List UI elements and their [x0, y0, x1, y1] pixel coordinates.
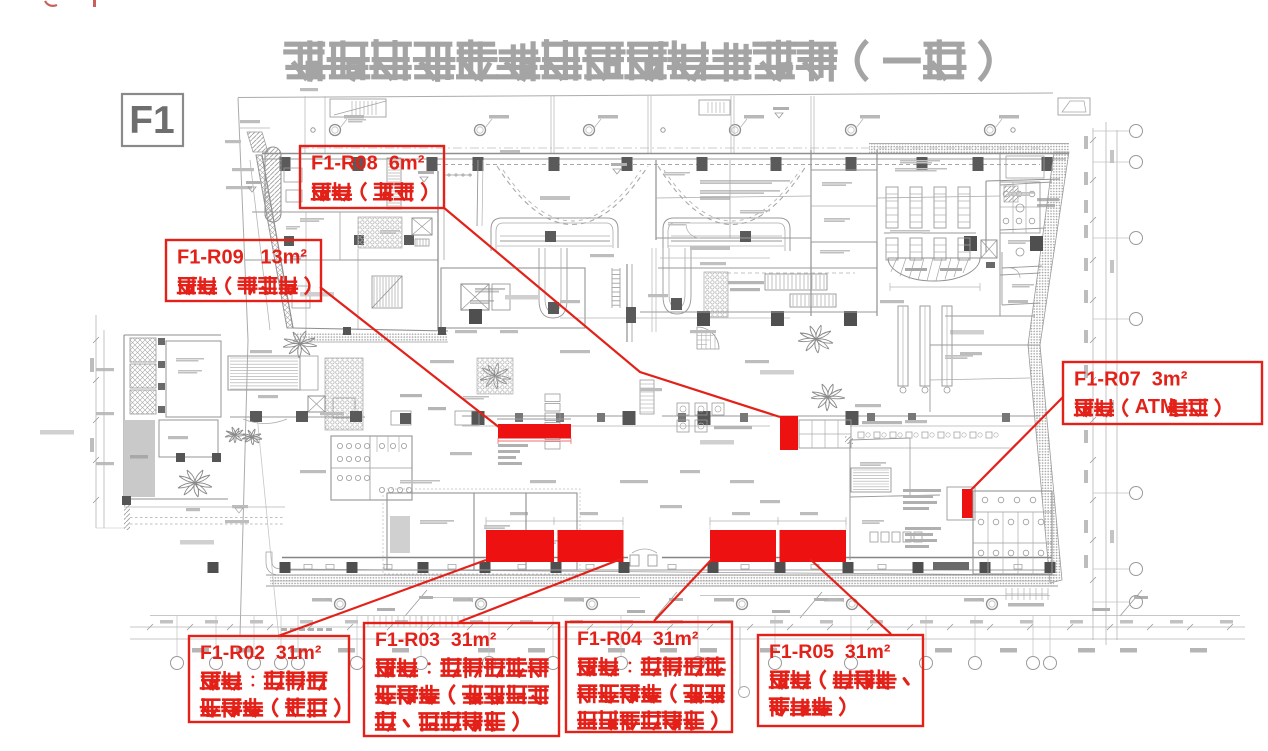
svg-text:F1-R07 3m²: F1-R07 3m² — [1074, 369, 1188, 391]
svg-text:F1-R04 31m²: F1-R04 31m² — [577, 628, 699, 650]
svg-text:F1-R02 31m²: F1-R02 31m² — [200, 642, 322, 664]
svg-text:F1-R08 6m²: F1-R08 6m² — [311, 153, 425, 175]
svg-text:F1-R09 13m²: F1-R09 13m² — [177, 247, 307, 269]
svg-text:F1-R03 31m²: F1-R03 31m² — [375, 629, 497, 651]
svg-text:F1: F1 — [129, 99, 175, 142]
svg-text:F1-R05 31m²: F1-R05 31m² — [769, 641, 891, 663]
